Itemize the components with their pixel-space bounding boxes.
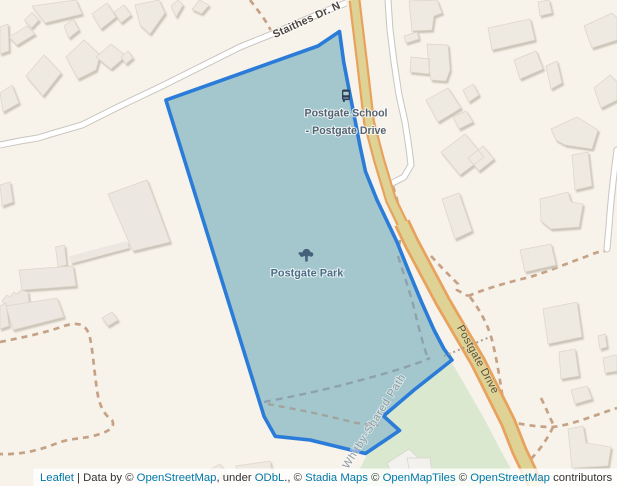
svg-text:Postgate School: Postgate School — [305, 108, 388, 120]
svg-text:- Postgate Drive: - Postgate Drive — [306, 125, 387, 137]
svg-text:Leaflet | Data by © OpenStreet: Leaflet | Data by © OpenStreetMap, under… — [40, 472, 612, 484]
svg-text:Postgate Park: Postgate Park — [271, 268, 345, 280]
